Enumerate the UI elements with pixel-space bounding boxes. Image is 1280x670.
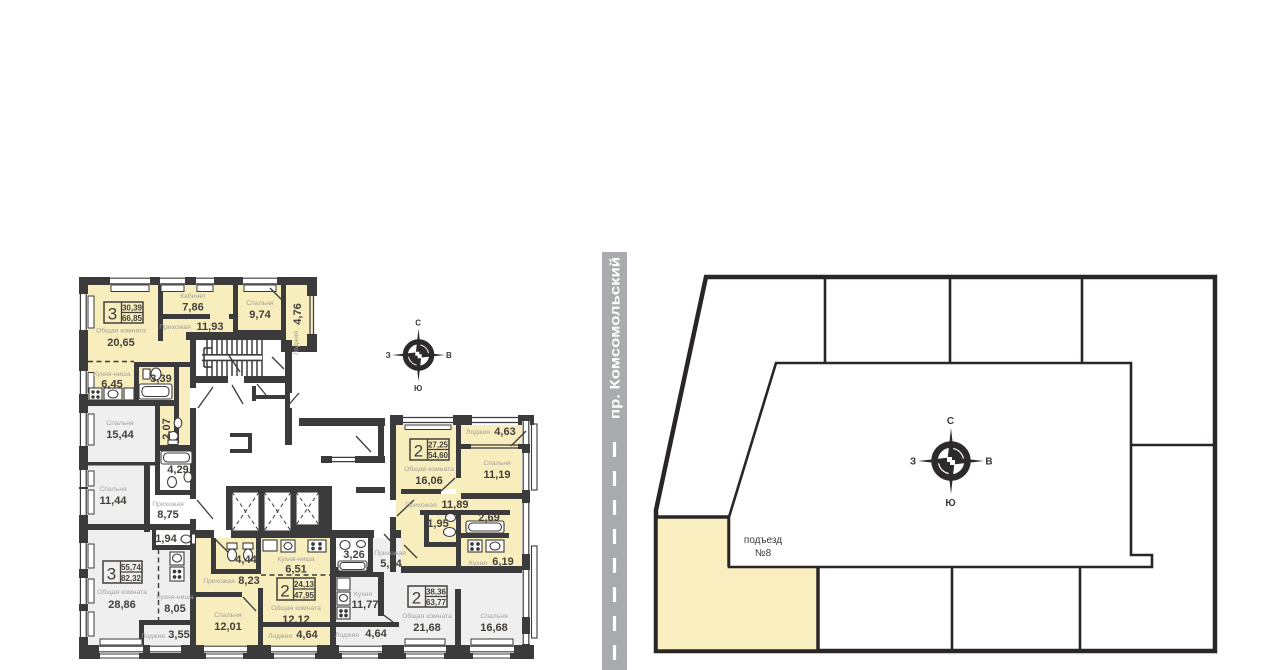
- svg-text:Лоджия: Лоджия: [293, 331, 300, 355]
- svg-text:3: 3: [107, 565, 116, 584]
- svg-text:12,01: 12,01: [214, 621, 242, 633]
- svg-text:Спальня: Спальня: [106, 420, 134, 427]
- svg-text:Лоджия: Лоджия: [268, 633, 292, 640]
- svg-text:8,23: 8,23: [238, 575, 259, 587]
- svg-text:Спальня: Спальня: [214, 612, 242, 619]
- svg-text:2: 2: [280, 582, 289, 601]
- svg-text:6,51: 6,51: [285, 564, 306, 576]
- svg-text:Спальня: Спальня: [99, 486, 127, 493]
- svg-text:3,55: 3,55: [168, 629, 189, 641]
- svg-text:11,44: 11,44: [100, 495, 128, 507]
- svg-text:2: 2: [412, 589, 421, 608]
- svg-text:Общая комната: Общая комната: [402, 612, 452, 620]
- svg-text:9,74: 9,74: [249, 309, 271, 321]
- svg-text:Кухня-ниша: Кухня-ниша: [156, 594, 193, 601]
- svg-text:8,05: 8,05: [164, 603, 185, 615]
- svg-text:2: 2: [414, 442, 423, 461]
- svg-text:№8: №8: [755, 548, 772, 559]
- svg-text:11,93: 11,93: [197, 321, 224, 333]
- svg-text:2,07: 2,07: [161, 418, 173, 439]
- svg-text:Спальня: Спальня: [483, 460, 511, 467]
- svg-text:12,12: 12,12: [282, 614, 310, 626]
- svg-text:28,86: 28,86: [108, 599, 136, 611]
- svg-text:82,32: 82,32: [121, 574, 142, 583]
- svg-text:11,89: 11,89: [442, 499, 469, 511]
- svg-text:Кухня: Кухня: [469, 560, 488, 567]
- svg-text:Кухня-ниша: Кухня-ниша: [277, 556, 314, 563]
- svg-text:27,25: 27,25: [428, 441, 449, 450]
- svg-text:4,76: 4,76: [292, 303, 304, 324]
- svg-text:Общая комната: Общая комната: [271, 604, 321, 612]
- svg-text:2,69: 2,69: [478, 512, 499, 524]
- svg-text:11,77: 11,77: [352, 599, 379, 611]
- svg-text:4,44: 4,44: [235, 554, 257, 566]
- svg-text:Прихожая: Прихожая: [203, 578, 235, 585]
- svg-text:20,65: 20,65: [107, 337, 135, 349]
- svg-text:38,36: 38,36: [426, 588, 447, 597]
- svg-text:24,13: 24,13: [294, 580, 315, 589]
- svg-text:Лоджия: Лоджия: [335, 632, 359, 639]
- svg-text:Общая комната: Общая комната: [404, 465, 454, 473]
- svg-text:3,39: 3,39: [150, 373, 171, 385]
- svg-text:4,63: 4,63: [494, 426, 515, 438]
- svg-text:Лоджия: Лоджия: [141, 633, 165, 640]
- svg-text:Спальня: Спальня: [246, 300, 274, 307]
- svg-text:16,06: 16,06: [415, 475, 443, 487]
- svg-text:6,19: 6,19: [492, 556, 513, 568]
- svg-text:пр. Комсомольский: пр. Комсомольский: [608, 257, 623, 419]
- svg-text:4,29: 4,29: [167, 464, 188, 476]
- svg-text:15,44: 15,44: [106, 429, 134, 441]
- svg-text:Прихожая: Прихожая: [159, 324, 191, 331]
- svg-text:Прихожая: Прихожая: [405, 502, 437, 509]
- svg-text:6,45: 6,45: [101, 379, 122, 391]
- svg-text:21,68: 21,68: [413, 622, 441, 634]
- svg-text:63,77: 63,77: [426, 598, 447, 607]
- svg-text:Кухня-ниша: Кухня-ниша: [93, 371, 130, 378]
- svg-text:8,75: 8,75: [157, 509, 178, 521]
- svg-text:7,86: 7,86: [182, 302, 203, 314]
- svg-text:4,64: 4,64: [365, 628, 387, 640]
- svg-text:30,39: 30,39: [122, 304, 143, 313]
- svg-text:66,85: 66,85: [122, 314, 143, 323]
- svg-text:Кухня: Кухня: [354, 591, 373, 598]
- svg-text:Прихожая: Прихожая: [374, 550, 406, 557]
- svg-text:Общая комната: Общая комната: [97, 588, 147, 596]
- svg-text:47,95: 47,95: [294, 591, 315, 600]
- svg-text:3,26: 3,26: [343, 549, 364, 561]
- svg-text:1,95: 1,95: [427, 518, 448, 530]
- svg-text:55,74: 55,74: [121, 563, 142, 572]
- svg-text:Прихожая: Прихожая: [152, 501, 184, 508]
- svg-text:подъезд: подъезд: [744, 535, 782, 546]
- svg-text:3: 3: [108, 305, 117, 324]
- svg-text:Лоджия: Лоджия: [466, 429, 490, 436]
- svg-text:11,19: 11,19: [484, 469, 511, 481]
- svg-text:Общая комната: Общая комната: [96, 327, 146, 335]
- svg-text:Спальня: Спальня: [480, 613, 508, 620]
- svg-text:1,94: 1,94: [155, 533, 177, 545]
- svg-text:Кабинет: Кабинет: [180, 292, 206, 300]
- svg-text:5,74: 5,74: [380, 558, 402, 570]
- svg-text:54,60: 54,60: [428, 451, 449, 460]
- svg-text:16,68: 16,68: [480, 622, 508, 634]
- svg-text:4,64: 4,64: [296, 629, 318, 641]
